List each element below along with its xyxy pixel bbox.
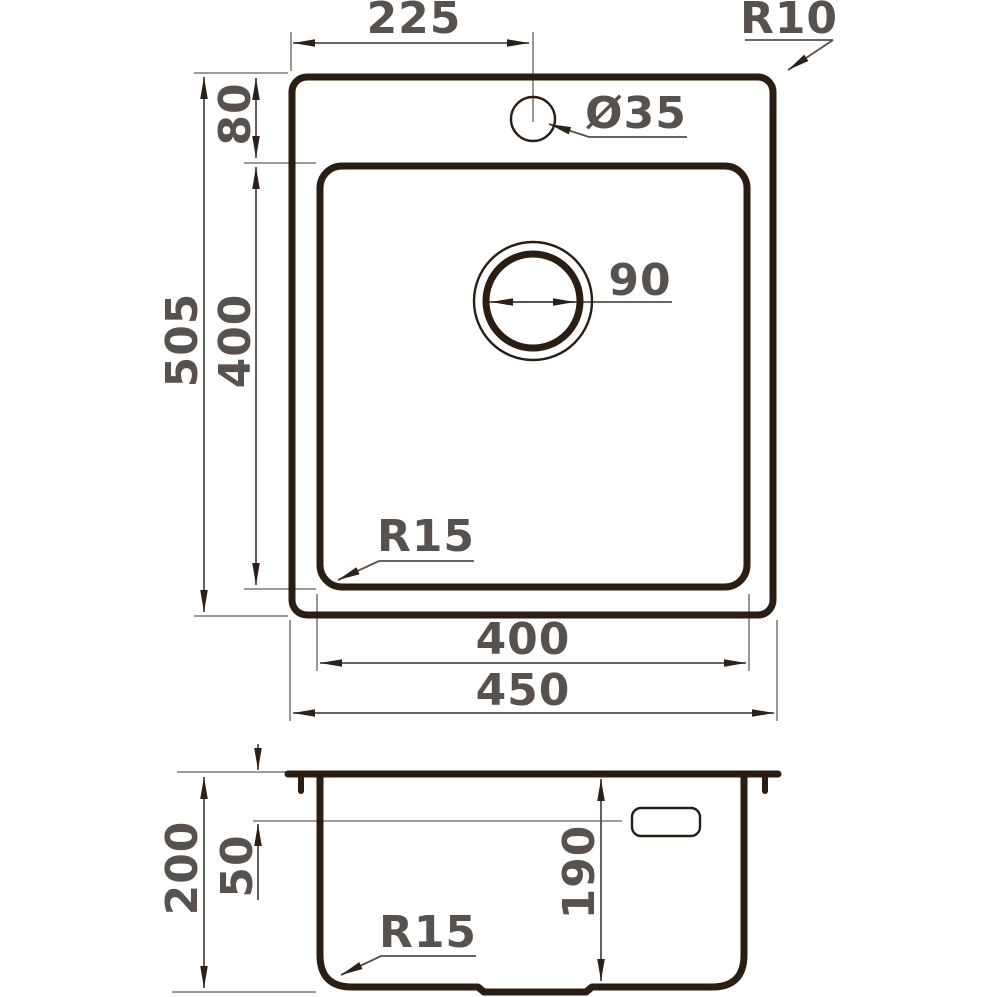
label-overall-width: 450 <box>476 665 571 716</box>
leader-r10-arrow <box>788 40 833 70</box>
label-corner-radius: R10 <box>740 0 838 44</box>
label-overall-depth: 200 <box>157 821 208 916</box>
overflow-hole <box>632 808 700 836</box>
drain-inner-ring <box>486 254 580 348</box>
label-bowl-length: 400 <box>210 294 261 389</box>
side-view: 200 50 190 R15 <box>157 744 778 992</box>
label-overflow-offset: 50 <box>212 834 263 897</box>
leader-r15-top-arrow <box>338 561 474 580</box>
leader-r15-side-arrow <box>341 956 476 975</box>
label-bowl-depth: 190 <box>554 825 605 920</box>
top-view: 225 R10 Ø35 90 80 400 505 R15 400 450 <box>157 0 838 721</box>
label-rim-to-bowl: 80 <box>210 82 261 145</box>
label-drain-diameter: 90 <box>608 255 671 306</box>
label-bowl-corner-radius: R15 <box>377 511 475 562</box>
label-overall-length: 505 <box>157 293 208 388</box>
drain-outer-ring <box>474 242 592 360</box>
label-bottom-corner-radius: R15 <box>379 907 477 958</box>
label-faucet-offset: 225 <box>367 0 462 44</box>
label-faucet-diameter: Ø35 <box>585 88 687 139</box>
sink-dimension-drawing-page: 225 R10 Ø35 90 80 400 505 R15 400 450 20… <box>0 0 997 997</box>
label-bowl-width: 400 <box>476 614 571 665</box>
sink-dimension-drawing: 225 R10 Ø35 90 80 400 505 R15 400 450 20… <box>0 0 997 997</box>
